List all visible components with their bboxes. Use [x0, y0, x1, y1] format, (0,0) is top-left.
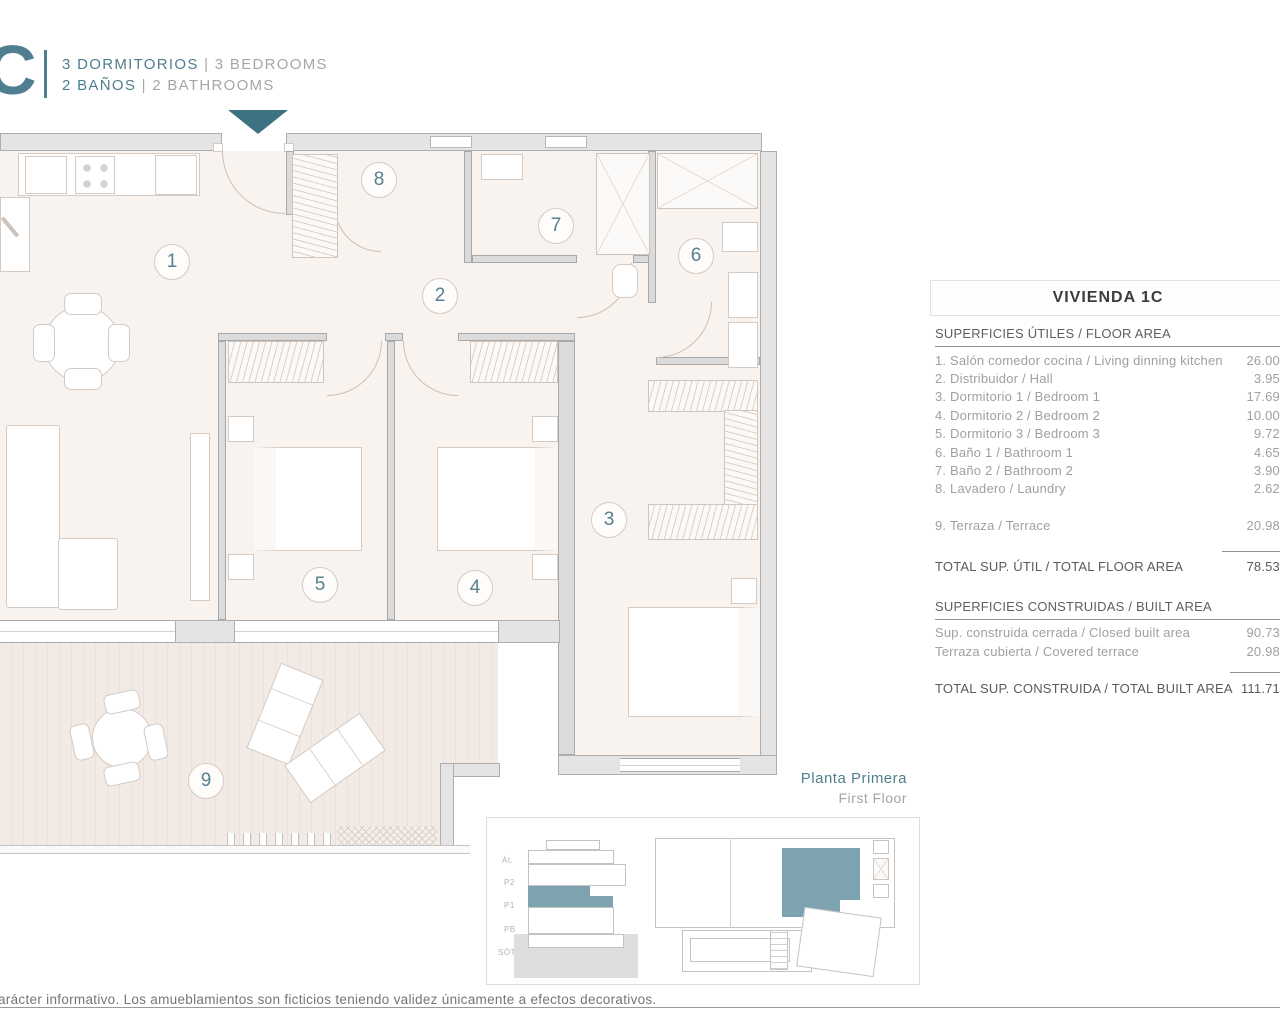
bathroom1-bidet [728, 322, 758, 368]
elevation-basement-level [528, 934, 624, 948]
total-divider [1230, 672, 1280, 673]
row-value: 3.90 [1254, 463, 1280, 478]
separator: | [204, 56, 209, 73]
elevation-floor-pb [528, 907, 614, 934]
bathroom2-toilet [612, 264, 638, 298]
bedroom2-wardrobe [470, 341, 558, 383]
site-plan-stairs [770, 930, 788, 970]
wall-segment [286, 133, 762, 151]
row-label: 4. Dormitorio 2 / Bedroom 2 [935, 408, 1100, 423]
room-label-living: 1 [154, 244, 190, 280]
bedroom1-closet-side [724, 410, 758, 506]
room-number: 9 [201, 770, 212, 792]
wall-segment [440, 763, 454, 853]
room-label-bedroom1: 3 [591, 502, 627, 538]
area-table: SUPERFICIES ÚTILES / FLOOR AREA 1. Salón… [935, 326, 1280, 698]
site-plan-stair-core [873, 840, 889, 854]
elevation-roof [546, 840, 600, 850]
wall-segment [175, 620, 235, 643]
bathroom2-sink [481, 154, 523, 180]
bedroom1-closet-bottom [648, 504, 758, 540]
bathrooms-en-label: 2 BATHROOMS [152, 77, 274, 94]
entrance-arrow-icon [228, 110, 288, 134]
table-row: 5. Dormitorio 3 / Bedroom 39.72 [935, 425, 1280, 443]
nightstand [532, 554, 558, 580]
row-value: 20.98 [1246, 644, 1280, 659]
built-area-header: SUPERFICIES CONSTRUIDAS / BUILT AREA [935, 599, 1280, 620]
site-plan-unit-highlight [782, 848, 860, 900]
unit-title: VIVIENDA 1C [1053, 289, 1164, 307]
bedroom1-bed [628, 607, 760, 717]
header-divider [44, 50, 47, 98]
row-value: 10.00 [1246, 408, 1280, 423]
wall-segment [0, 133, 222, 151]
level-label-pb: PB [504, 925, 516, 934]
wall-vent [430, 136, 472, 148]
row-value: 20.98 [1246, 518, 1280, 533]
header-line-bedrooms: 3 DORMITORIOS | 3 BEDROOMS [62, 56, 328, 73]
bathroom1-sink [722, 222, 758, 252]
row-label: 6. Baño 1 / Bathroom 1 [935, 445, 1073, 460]
bathroom2-bathtub [596, 153, 650, 255]
row-label: 9. Terraza / Terrace [935, 518, 1051, 533]
row-value: 26.00 [1246, 353, 1280, 368]
dining-chair [108, 324, 130, 362]
room-number: 1 [167, 251, 178, 273]
tv-sideboard [190, 433, 210, 601]
room-label-bathroom1: 6 [678, 238, 714, 274]
level-label-p1: P1 [504, 901, 515, 910]
level-label-atico: Át. [502, 856, 513, 865]
separator: | [142, 77, 147, 94]
bedrooms-en-label: 3 BEDROOMS [215, 56, 328, 73]
site-plan-divider [730, 838, 731, 928]
terrace-rail [0, 845, 470, 854]
wall-vent [545, 136, 587, 148]
bathroom1-shower [657, 153, 758, 209]
wall-segment [498, 620, 560, 643]
room-number: 5 [315, 574, 326, 596]
dining-chair [64, 368, 102, 390]
nightstand [228, 554, 254, 580]
floor-area-header: SUPERFICIES ÚTILES / FLOOR AREA [935, 326, 1280, 347]
room-number: 2 [435, 285, 446, 307]
row-value: 78.53 [1246, 559, 1280, 574]
table-row: Terraza cubierta / Covered terrace20.98 [935, 642, 1280, 660]
table-row: 7. Baño 2 / Bathroom 23.90 [935, 461, 1280, 479]
room-number: 6 [691, 245, 702, 267]
row-label: 1. Salón comedor cocina / Living dinning… [935, 353, 1223, 368]
kitchen-sink [155, 155, 197, 195]
table-row: 3. Dormitorio 1 / Bedroom 117.69 [935, 388, 1280, 406]
site-plan-core-box [873, 884, 889, 898]
kitchen-stove [75, 156, 115, 194]
kitchen-oven [25, 156, 67, 194]
wall-segment [218, 333, 327, 341]
row-value: 90.73 [1246, 625, 1280, 640]
total-divider [1222, 551, 1280, 552]
sofa-chaise [58, 538, 118, 610]
room-label-hall: 2 [422, 278, 458, 314]
row-label: TOTAL SUP. ÚTIL / TOTAL FLOOR AREA [935, 559, 1183, 574]
row-value: 17.69 [1246, 389, 1280, 404]
row-value: 111.71 [1241, 681, 1280, 696]
laundry-appliances [292, 154, 338, 258]
unit-letter: C [0, 30, 37, 110]
header-line-bathrooms: 2 BAÑOS | 2 BATHROOMS [62, 77, 275, 94]
room-number: 8 [374, 169, 385, 191]
wall-segment [385, 333, 403, 341]
site-plan-annex-building [796, 907, 882, 977]
terrace-table [92, 708, 152, 768]
room-label-bedroom2: 4 [457, 570, 493, 606]
nightstand [532, 416, 558, 442]
row-label: 5. Dormitorio 3 / Bedroom 3 [935, 426, 1100, 441]
nightstand [228, 416, 254, 442]
level-label-p2: P2 [504, 878, 515, 887]
wall-segment [464, 151, 472, 263]
table-row: 8. Lavadero / Laundry2.62 [935, 480, 1280, 498]
floor-label-en: First Floor [757, 790, 907, 806]
elevation-floor-p1-highlight [528, 886, 590, 907]
room-number: 4 [470, 577, 481, 599]
total-floor-area-row: TOTAL SUP. ÚTIL / TOTAL FLOOR AREA78.53 [935, 557, 1280, 577]
row-value: 3.95 [1254, 371, 1280, 386]
bathrooms-es-label: 2 BAÑOS [62, 77, 136, 94]
dining-chair [64, 293, 102, 315]
bedrooms-es-label: 3 DORMITORIOS [62, 56, 199, 73]
wall-segment [472, 255, 577, 263]
room-label-laundry: 8 [361, 162, 397, 198]
wall-segment [458, 333, 575, 341]
row-label: Sup. construida cerrada / Closed built a… [935, 625, 1190, 640]
row-label: Terraza cubierta / Covered terrace [935, 644, 1139, 659]
table-row: 4. Dormitorio 2 / Bedroom 210.00 [935, 406, 1280, 424]
total-built-area-row: TOTAL SUP. CONSTRUIDA / TOTAL BUILT AREA… [935, 678, 1280, 698]
table-row: 1. Salón comedor cocina / Living dinning… [935, 351, 1280, 369]
table-row: 2. Distribuidor / Hall3.95 [935, 369, 1280, 387]
row-label: 3. Dormitorio 1 / Bedroom 1 [935, 389, 1100, 404]
bedroom1-window [620, 758, 740, 772]
table-row-terrace: 9. Terraza / Terrace20.98 [935, 516, 1280, 534]
room-label-bathroom2: 7 [538, 208, 574, 244]
elevation-floor-attic [528, 850, 614, 864]
elevation-floor-p1-step [590, 896, 613, 907]
site-plan-lift [873, 858, 889, 880]
nightstand [731, 578, 757, 604]
row-label: 8. Lavadero / Laundry [935, 481, 1066, 496]
disclaimer-text: arácter informativo. Los amueblamientos … [0, 992, 657, 1007]
elevation-floor-p2 [528, 864, 626, 886]
row-label: 2. Distribuidor / Hall [935, 371, 1053, 386]
wall-segment [760, 151, 777, 775]
dining-chair [33, 324, 55, 362]
bathroom1-toilet [728, 272, 758, 318]
table-row: Sup. construida cerrada / Closed built a… [935, 624, 1280, 642]
row-value: 2.62 [1254, 481, 1280, 496]
unit-title-box: VIVIENDA 1C [930, 280, 1280, 316]
bedroom2-bed [437, 447, 557, 551]
room-label-bedroom3: 5 [302, 567, 338, 603]
page: { "header": { "unit_letter": "C", "rooms… [0, 0, 1280, 1024]
footer-divider [0, 1007, 1280, 1008]
bedroom3-wardrobe [228, 341, 324, 383]
row-value: 9.72 [1254, 426, 1280, 441]
row-value: 4.65 [1254, 445, 1280, 460]
wall-segment [218, 341, 226, 620]
wall-segment [558, 341, 575, 755]
room-label-terrace: 9 [188, 763, 224, 799]
sliding-window-band [0, 620, 560, 643]
room-number: 3 [604, 509, 615, 531]
bedroom3-bed [254, 447, 362, 551]
sofa [6, 425, 60, 608]
row-label: 7. Baño 2 / Bathroom 2 [935, 463, 1073, 478]
floor-label-es: Planta Primera [757, 770, 907, 787]
table-row: 6. Baño 1 / Bathroom 14.65 [935, 443, 1280, 461]
wall-segment [387, 341, 395, 620]
room-number: 7 [551, 215, 562, 237]
bedroom1-closet-top [648, 380, 758, 412]
row-label: TOTAL SUP. CONSTRUIDA / TOTAL BUILT AREA [935, 681, 1233, 696]
